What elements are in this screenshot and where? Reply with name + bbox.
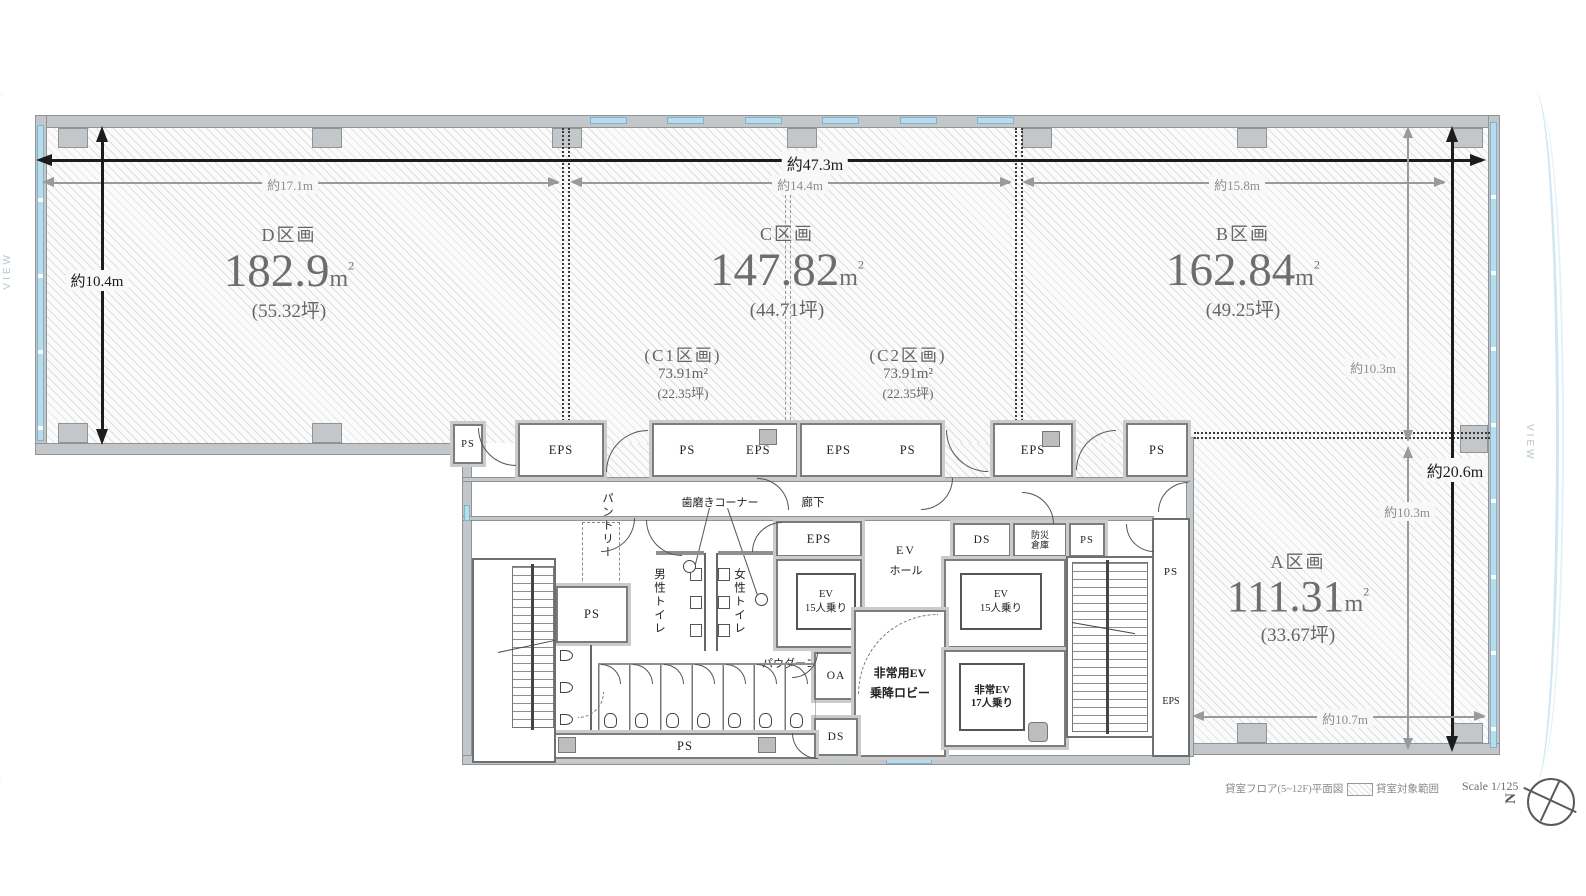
ev-car: EV15人乗り [796, 573, 856, 630]
column [312, 128, 342, 148]
room-label: PS [900, 443, 916, 458]
column [1237, 723, 1267, 743]
room-label: PS [584, 607, 600, 622]
dim-total-height-label: 約20.6m [1422, 458, 1488, 482]
arrowhead [548, 177, 560, 187]
dim-total-height-line [1451, 132, 1454, 744]
section-c-area: 147.82m2 [710, 246, 864, 295]
toilet [728, 713, 741, 728]
stair-rail [531, 564, 534, 730]
legend-swatch [1347, 783, 1373, 796]
section-d-label: D区画 182.9m2 (55.32坪) [224, 221, 354, 323]
room-label: OA [827, 670, 846, 682]
section-b-tsubo: (49.25坪) [1166, 295, 1320, 322]
window-top-5 [900, 117, 937, 124]
window-strip-left [37, 125, 44, 441]
dim-b-width-label: 約15.8m [1209, 175, 1265, 194]
toilet-stall [718, 624, 730, 637]
section-c1-name: (C1区画) [644, 341, 721, 366]
room-eps: EPS [518, 423, 604, 477]
arrowhead [1446, 126, 1458, 142]
section-c2-name: (C2区画) [869, 341, 946, 366]
ev-label: 15人乗り [805, 602, 847, 615]
column [1453, 128, 1483, 148]
arrowhead [1403, 430, 1413, 442]
ev-label: EV [819, 588, 833, 601]
window-top-1 [590, 117, 627, 124]
room-label: 防災 倉庫 [1031, 530, 1049, 551]
shaft-ps-label: PS [1164, 566, 1178, 578]
section-b-area: 162.84m2 [1166, 246, 1320, 295]
dim-total-width-line [42, 159, 1482, 162]
section-c2-tsubo: (22.35坪) [869, 383, 946, 402]
toilet [759, 713, 772, 728]
column [1237, 128, 1267, 148]
shaft-marker [558, 737, 576, 753]
legend-label: 貸室対象範囲 [1376, 781, 1439, 796]
window-top-6 [977, 117, 1014, 124]
shaft-marker [758, 737, 776, 753]
toilet [790, 713, 803, 728]
room-ps: PS [1069, 523, 1105, 557]
section-a-area: 111.31m2 [1227, 574, 1369, 620]
column [312, 423, 342, 443]
room-label: PS [1080, 535, 1094, 546]
room-label: EPS [826, 443, 851, 458]
mens-toilet-label: 男性トイレ [651, 568, 667, 636]
section-b-name: B区画 [1166, 220, 1320, 246]
shaft-marker [759, 429, 777, 445]
room-ds: DS [953, 523, 1011, 557]
arrowhead [1403, 738, 1413, 750]
section-a-label: A区画 111.31m2 (33.67坪) [1227, 548, 1369, 647]
room-label: PS [1149, 443, 1165, 458]
room-label: PS [461, 439, 475, 450]
room-ps: PS [1126, 423, 1188, 477]
column [58, 128, 88, 148]
toilet-stall [718, 596, 730, 609]
column [787, 128, 817, 148]
arrowhead [1474, 711, 1486, 721]
arrowhead [1403, 446, 1413, 458]
window-strip-right [1490, 122, 1497, 748]
room-eps-ps: EPS PS [800, 423, 942, 477]
ev-label: 15人乗り [980, 602, 1022, 615]
section-c-name: C区画 [710, 220, 864, 246]
section-d-area: 182.9m2 [224, 247, 354, 296]
wash-basin [755, 593, 768, 606]
window-top-2 [667, 117, 704, 124]
section-c1-label: (C1区画) 73.91m² (22.35坪) [644, 341, 721, 402]
arrowhead [1000, 177, 1012, 187]
shaft-right [1152, 518, 1190, 757]
arrowhead [42, 177, 54, 187]
wall-core-left [462, 443, 472, 765]
toilet [604, 713, 617, 728]
stairs [1072, 562, 1148, 732]
arrowhead [1192, 711, 1204, 721]
dim-a-width-label: 約10.7m [1317, 709, 1373, 728]
section-c2-area: 73.91m² [869, 366, 946, 383]
room-label: PS [679, 443, 695, 458]
dim-c-width-label: 約14.4m [772, 175, 828, 194]
column [1460, 425, 1488, 453]
room-eps: EPS [776, 521, 862, 557]
womens-toilet-label: 女性トイレ [731, 568, 747, 636]
plan-title: 貸室フロア(5~12F)平面図 [1225, 781, 1343, 796]
scale-label: Scale 1/125 [1462, 779, 1518, 794]
divider-b-a [1194, 432, 1490, 439]
ev-hall-label-2: ホール [890, 562, 923, 578]
arrowhead [36, 154, 52, 166]
room-ds: DS [814, 718, 858, 756]
column [58, 423, 88, 443]
room-oa: OA [814, 652, 858, 700]
column [1453, 723, 1483, 743]
section-d-name: D区画 [224, 221, 354, 247]
arrowhead [1022, 177, 1034, 187]
room-eps: EPS [993, 423, 1073, 477]
room-ps-strip: PS [554, 733, 816, 759]
section-c1-area: 73.91m² [644, 366, 721, 383]
dim-total-width-label: 約47.3m [782, 151, 848, 175]
section-d-tsubo: (55.32坪) [224, 296, 354, 323]
wash-basin [683, 560, 696, 573]
section-c1-tsubo: (22.35坪) [644, 383, 721, 402]
section-a-name: A区画 [1227, 548, 1369, 574]
wall-corridor-top [462, 477, 1190, 482]
arrowhead [570, 177, 582, 187]
toilet-stall [690, 596, 702, 609]
window-core-bottom [886, 756, 932, 764]
ev-car: 非常EV17人乗り [959, 663, 1025, 731]
toilet-center-wall [704, 553, 718, 651]
dim-a-height-label: 約10.3m [1379, 502, 1435, 521]
stair-rail [1106, 560, 1109, 734]
ev-car: EV15人乗り [960, 573, 1042, 630]
arrowhead [1470, 154, 1486, 166]
room-label: EPS [549, 443, 574, 458]
column [1022, 128, 1052, 148]
section-c-label: C区画 147.82m2 (44.71坪) [710, 220, 864, 322]
dim-b-height-label: 約10.3m [1345, 358, 1401, 377]
window-core-left [464, 505, 470, 521]
arrowhead [96, 429, 108, 445]
section-c2-label: (C2区画) 73.91m² (22.35坪) [869, 341, 946, 402]
section-b-label: B区画 162.84m2 (49.25坪) [1166, 220, 1320, 322]
window-top-4 [822, 117, 859, 124]
toilet [635, 713, 648, 728]
dim-d-width-label: 約17.1m [262, 175, 318, 194]
floor-plan-page: 約47.3m 約17.1m 約14.4m 約15.8m 約10.4m 約20.6… [0, 0, 1586, 896]
divider-c-b [1015, 128, 1023, 428]
ev-label: 17人乗り [971, 697, 1013, 710]
arrowhead [1446, 736, 1458, 752]
arrowhead [1403, 126, 1413, 138]
room-ps: PS [556, 586, 628, 643]
room-label: DS [974, 534, 991, 546]
dim-a-height-line [1407, 453, 1409, 741]
toilet-stall [718, 568, 730, 581]
dim-b-height-line [1407, 132, 1409, 432]
view-label-right: VIEW [1524, 424, 1535, 462]
ev-hall-label-1: EV [896, 543, 916, 558]
compass-n-label: N [1503, 793, 1520, 804]
room-label: EPS [807, 532, 832, 547]
toilet [697, 713, 710, 728]
shaft-marker [1028, 722, 1048, 742]
shaft-marker [1042, 431, 1060, 447]
shaft-eps-label: EPS [1162, 696, 1179, 707]
room-label: DS [828, 731, 845, 743]
section-c-tsubo: (44.71坪) [710, 295, 864, 322]
window-top-3 [745, 117, 782, 124]
arrowhead [96, 126, 108, 142]
toothbrush-corner-label: 歯磨きコーナー [682, 494, 759, 510]
toilet [666, 713, 679, 728]
arrowhead [1434, 177, 1446, 187]
toilet-stall [690, 624, 702, 637]
ev-label: 非常EV [974, 684, 1010, 697]
room-label: PS [677, 739, 693, 754]
section-a-tsubo: (33.67坪) [1227, 620, 1369, 647]
ev-label: EV [994, 588, 1008, 601]
dim-d-height-label: 約10.4m [66, 270, 129, 291]
room-bousai-souko: 防災 倉庫 [1013, 523, 1067, 557]
divider-d-c [562, 128, 570, 428]
view-label-left: VIEW [2, 252, 13, 290]
corridor-label: 廊下 [802, 494, 825, 510]
